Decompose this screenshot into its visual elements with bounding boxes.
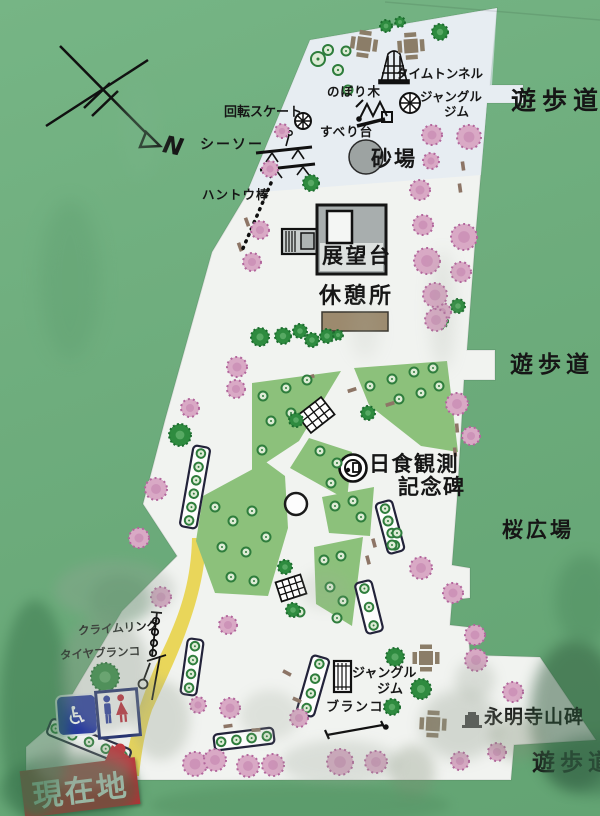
picnic-table-icon (420, 667, 432, 672)
label-walkway-top: 遊歩道 (511, 88, 600, 114)
cherry-tree-icon (416, 563, 426, 573)
tree-icon (261, 449, 263, 451)
picnic-table-icon (419, 717, 424, 729)
cherry-tree-icon (428, 131, 437, 140)
cherry-tree-icon (210, 755, 220, 765)
picnic-table-icon (427, 710, 439, 715)
tree-icon (432, 367, 434, 369)
label-sakura-plaza: 桜広場 (502, 519, 574, 541)
bush-tree-icon (391, 653, 398, 660)
tree-icon (306, 379, 308, 381)
path-dash (251, 728, 260, 732)
label-observation-deck: 展望台 (322, 245, 393, 267)
bush-tree-icon (293, 417, 299, 423)
tree-icon (438, 385, 440, 387)
cherry-tree-icon (458, 231, 470, 243)
cherry-tree-icon (224, 621, 232, 629)
bush-tree-icon (324, 333, 330, 339)
tree-icon (342, 600, 344, 602)
tree-icon (245, 551, 247, 553)
picnic-table-icon (426, 717, 441, 732)
jungle-gym-cylinder-icon (334, 661, 351, 692)
compass-north-arrow-icon (46, 46, 160, 147)
cherry-tree-icon (416, 186, 425, 195)
tree-icon (398, 398, 400, 400)
bush-tree-icon (309, 337, 315, 343)
picnic-table-icon (435, 652, 440, 664)
cherry-tree-icon (268, 760, 278, 770)
bush-tree-icon (437, 29, 443, 35)
label-eclipse-monument-1: 日食観測 (369, 453, 459, 475)
cherry-tree-icon (226, 704, 235, 713)
bush-tree-icon (398, 20, 402, 24)
tree-icon (330, 482, 332, 484)
label-walkway-bottom: 遊歩道 (532, 751, 600, 775)
cherry-tree-icon (194, 701, 201, 708)
label-sandbox: 砂場 (371, 148, 417, 170)
tree-icon (262, 395, 264, 397)
cherry-tree-icon (256, 226, 264, 234)
bush-tree-icon (384, 24, 389, 29)
tree-icon (214, 506, 216, 508)
tree-icon (327, 49, 329, 51)
tree-icon (387, 520, 389, 522)
cherry-tree-icon (467, 432, 475, 440)
cherry-tree-icon (266, 165, 273, 172)
label-swing: ブランコ (326, 701, 384, 715)
cherry-tree-icon (190, 759, 201, 770)
cherry-tree-icon (135, 534, 144, 543)
cherry-tree-icon (371, 757, 381, 767)
cherry-tree-icon (232, 385, 240, 393)
picnic-table-icon (426, 733, 438, 738)
cherry-tree-icon (248, 258, 256, 266)
tree-icon (352, 500, 354, 502)
bush-tree-icon (297, 328, 303, 334)
tree-icon (336, 462, 338, 464)
tree-icon (232, 520, 234, 522)
label-jungle-gym-bottom-1: ジャングル (352, 667, 416, 681)
cherry-tree-icon (295, 714, 303, 722)
tree-icon (337, 69, 339, 71)
bush-tree-icon (308, 180, 314, 186)
toilet-pictogram-icon (97, 691, 132, 730)
tree-icon (253, 580, 255, 582)
cherry-tree-icon (421, 255, 433, 267)
tree-icon (396, 532, 398, 534)
label-slide: すべり台 (320, 125, 373, 138)
bush-tree-icon (280, 333, 286, 339)
cherry-tree-icon (279, 128, 285, 134)
cherry-tree-icon (186, 404, 194, 412)
picnic-table-icon (420, 39, 425, 51)
tree-icon (391, 378, 393, 380)
cherry-tree-icon (427, 157, 434, 164)
tree-icon (251, 510, 253, 512)
fountain-circle-icon (285, 493, 307, 515)
bush-tree-icon (455, 303, 461, 309)
label-time-tunnel: タイムトンネル (396, 67, 483, 80)
wheelchair-icon: ♿ (65, 702, 89, 729)
wheelchair-sign: ♿ (55, 693, 100, 738)
bush-tree-icon (176, 431, 185, 440)
picnic-table-icon (442, 718, 447, 730)
tree-icon (413, 371, 415, 373)
tree-icon (369, 385, 371, 387)
tree-icon (345, 50, 347, 52)
cherry-tree-icon (151, 484, 161, 494)
cherry-tree-icon (493, 748, 501, 756)
picnic-table-icon (356, 36, 372, 52)
picnic-table-icon (404, 32, 416, 37)
tree-icon (420, 392, 422, 394)
bush-tree-icon (365, 410, 371, 416)
cherry-tree-icon (430, 290, 441, 301)
label-walkway-mid: 遊歩道 (510, 353, 594, 377)
picnic-table-icon (419, 651, 433, 665)
cherry-tree-icon (464, 132, 475, 143)
cherry-tree-icon (452, 399, 462, 409)
label-jungle-gym-top-1: ジャングル (420, 90, 482, 103)
picnic-table-icon (406, 55, 418, 60)
cherry-tree-icon (419, 221, 428, 230)
rest-area-building (322, 312, 388, 331)
cherry-tree-icon (334, 756, 346, 768)
label-jungle-gym-bottom-2: ジム (377, 683, 403, 697)
cherry-tree-icon (471, 655, 481, 665)
tree-icon (360, 516, 362, 518)
bush-tree-icon (290, 607, 296, 613)
tree-icon (340, 555, 342, 557)
label-hanging-pole: ハントウ棒 (202, 188, 270, 201)
tree-icon (336, 617, 338, 619)
label-rotating-skate: 回転スケート (224, 106, 302, 120)
cherry-tree-icon (457, 268, 466, 277)
picnic-table-icon (420, 645, 432, 650)
park-map-board: N 遊歩道 遊歩道 遊歩道 桜広場 永明寺山碑 タイムトンネル のぼり木 ジャン… (0, 0, 600, 816)
tree-icon (323, 559, 325, 561)
picnic-table-icon (413, 652, 418, 664)
cherry-tree-icon (456, 757, 464, 765)
cherry-tree-icon (157, 593, 166, 602)
spinner-wheel-icon (400, 93, 420, 113)
label-climbing-tree: のぼり木 (327, 85, 381, 98)
tree-icon (319, 450, 321, 452)
tree-icon (391, 544, 393, 546)
tree-icon (230, 576, 232, 578)
cherry-tree-icon (509, 688, 518, 697)
label-jungle-gym-top-2: ジム (444, 105, 469, 118)
tree-icon (329, 586, 331, 588)
bush-tree-icon (282, 564, 288, 570)
bush-tree-icon (389, 704, 395, 710)
tree-icon (270, 420, 272, 422)
bush-tree-icon (99, 671, 110, 682)
bush-tree-icon (336, 333, 340, 337)
label-eimeiji-monument: 永明寺山碑 (484, 708, 584, 728)
cherry-tree-icon (449, 589, 458, 598)
tree-icon (285, 387, 287, 389)
bush-tree-icon (417, 685, 425, 693)
label-seesaw: シーソー (200, 138, 264, 153)
toilet-sign (94, 687, 142, 740)
cherry-tree-icon (243, 761, 253, 771)
picnic-table-icon (404, 39, 419, 54)
tree-icon (221, 546, 223, 548)
tree-icon (316, 57, 319, 60)
tree-icon (265, 536, 267, 538)
cherry-tree-icon (471, 631, 480, 640)
cherry-tree-icon (233, 363, 242, 372)
label-eclipse-monument-2: 記念碑 (398, 476, 466, 498)
bush-tree-icon (256, 333, 263, 340)
tree-icon (290, 412, 292, 414)
eclipse-monument-icon (340, 455, 367, 482)
label-rest-area: 休憩所 (319, 285, 394, 308)
spinner-wheel-icon (408, 101, 411, 104)
tree-icon (334, 505, 336, 507)
cherry-tree-icon (431, 315, 441, 325)
picnic-table-icon (397, 41, 402, 53)
